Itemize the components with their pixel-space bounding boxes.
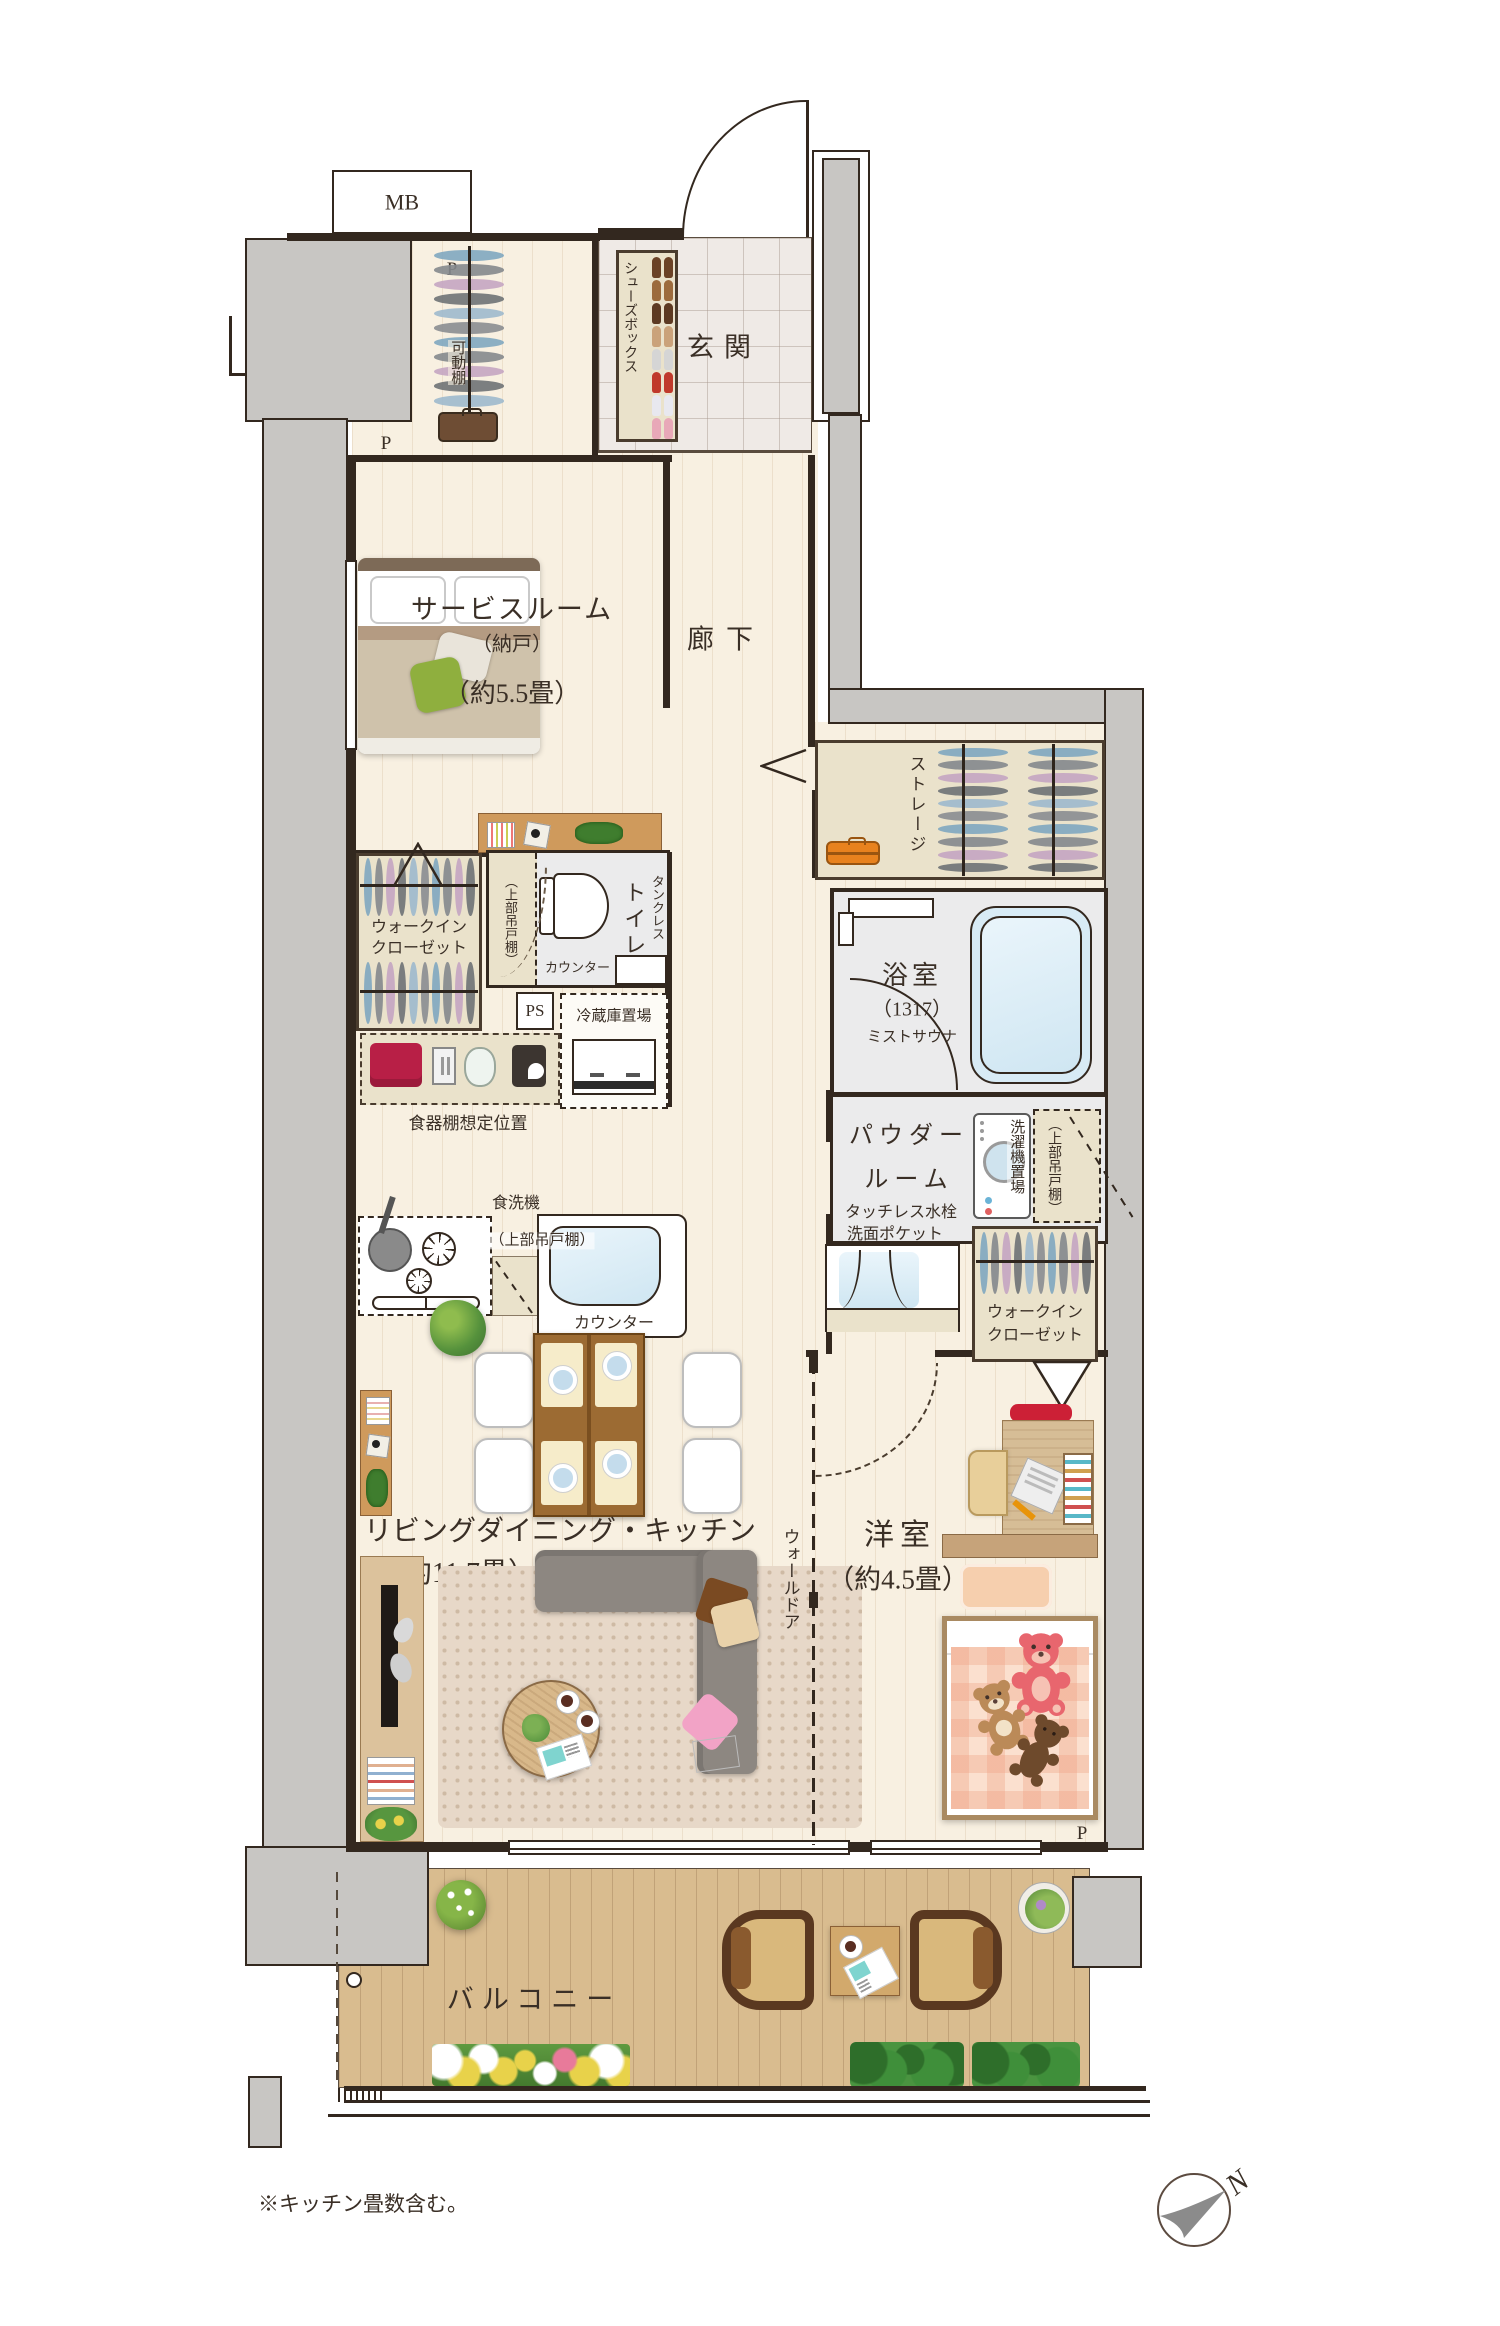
child-bed-headboard	[942, 1534, 1098, 1558]
hanging-garment	[938, 799, 1008, 809]
hanging-garment	[421, 962, 429, 1024]
shoe-icon	[652, 257, 661, 278]
dishwasher-label: 食洗機	[492, 1195, 540, 1213]
wall	[808, 455, 815, 747]
hanging-garment	[455, 858, 463, 916]
mb-label: MB	[385, 189, 419, 214]
shoe-icon	[664, 326, 673, 347]
hanging-garment	[409, 962, 417, 1024]
drain-cap	[346, 1972, 362, 1988]
hanging-garment	[938, 773, 1008, 783]
clothes-rail	[468, 246, 471, 412]
hanging-garment	[1071, 1232, 1079, 1294]
bush-planter	[850, 2042, 964, 2088]
dining-chair	[474, 1438, 534, 1514]
hanging-garment	[375, 858, 383, 916]
coffee-maker	[512, 1045, 546, 1087]
movable-shelf-label: 可動棚	[448, 340, 465, 385]
dining-chair	[682, 1352, 742, 1428]
bathtub	[970, 906, 1092, 1084]
coffee-table	[502, 1680, 600, 1778]
kitchen-stove-unit	[358, 1216, 492, 1316]
hanging-garment	[991, 1232, 999, 1294]
toilet-door-swing	[499, 865, 547, 977]
wall	[1040, 1842, 1108, 1852]
rattan-chair	[910, 1910, 1002, 2010]
hanging-garment	[386, 962, 394, 1024]
shoe-icon	[664, 349, 673, 370]
flower-planter	[432, 2044, 630, 2086]
wic2-clothes-rack	[978, 1232, 1092, 1294]
hanging-garment	[938, 748, 1008, 758]
kitchen-cabinet-corner	[492, 1256, 538, 1316]
service-room-size-label: （約5.5畳）	[444, 679, 581, 709]
hanging-garment	[938, 837, 1008, 847]
storage-door-marker	[760, 748, 808, 784]
hanging-garment	[1028, 786, 1098, 796]
toilet-counter-label: カウンター	[545, 961, 610, 976]
shoe-icon	[652, 372, 661, 393]
toilet-counter	[615, 955, 667, 985]
desk-chair	[968, 1450, 1008, 1516]
wall-door-label: ウォールドア	[780, 1528, 800, 1630]
shoe-icon	[664, 395, 673, 416]
coffee-cup	[576, 1710, 600, 1734]
potted-plant	[1018, 1882, 1070, 1934]
hanging-garment	[364, 858, 372, 916]
hanging-garment	[938, 786, 1008, 796]
hanging-garment	[398, 962, 406, 1024]
dining-chair	[474, 1352, 534, 1428]
hanging-garment	[364, 962, 372, 1024]
shoe-pair	[647, 418, 677, 439]
plan-note: ※キッチン畳数含む。	[258, 2192, 468, 2216]
kitchen-counter-label: カウンター	[574, 1315, 654, 1333]
hanging-garment	[938, 760, 1008, 770]
wic2-label-line1: ウォークイン	[987, 1304, 1083, 1322]
tv-board	[360, 1556, 424, 1842]
powder-label-line1: パウダー	[849, 1123, 969, 1151]
cupboard-note-label: 食器棚想定位置	[409, 1114, 528, 1134]
wall	[806, 1350, 818, 1357]
floor-plan: MB 玄関 シューズボックス P 可動棚 P	[0, 0, 1500, 2326]
shoes-box: シューズボックス	[616, 250, 678, 442]
study-desk	[1002, 1420, 1094, 1540]
hanging-garment	[1002, 1232, 1010, 1294]
ldk-label: リビングダイニング・キッチン	[364, 1516, 756, 1548]
hanging-garment	[1028, 799, 1098, 809]
bath-door-swing	[850, 978, 958, 1090]
wall	[598, 228, 684, 240]
play-cushion	[692, 1735, 740, 1773]
hanging-garment	[443, 962, 451, 1024]
hanging-garment	[938, 863, 1008, 873]
dining-chair	[682, 1438, 742, 1514]
meter-box: MB	[332, 170, 472, 234]
sideboard	[360, 1390, 392, 1516]
railing-hatch	[338, 2088, 384, 2102]
wall	[592, 237, 598, 455]
hanging-garment	[938, 850, 1008, 860]
service-room-sub-label: （納戸）	[472, 634, 552, 657]
hanging-garment	[980, 1232, 988, 1294]
hanging-garment	[1028, 760, 1098, 770]
entrance-door-swing	[682, 100, 806, 237]
fridge-space: 冷蔵庫置場	[560, 993, 668, 1109]
exterior-wall-top-left	[245, 238, 412, 422]
refrigerator	[572, 1039, 656, 1095]
hanging-garment	[1059, 1232, 1067, 1294]
shoe-pair	[647, 395, 677, 416]
wall	[352, 455, 672, 462]
rice-cooker	[464, 1047, 496, 1087]
shoe-pair	[647, 372, 677, 393]
flower-plant	[365, 1807, 417, 1841]
hanging-garment	[938, 824, 1008, 834]
property-line	[229, 316, 232, 376]
shoe-icon	[664, 418, 673, 439]
ps-label: PS	[526, 1001, 545, 1021]
burner	[406, 1268, 432, 1294]
topiary-plant	[436, 1880, 486, 1930]
hanging-garment	[1028, 748, 1098, 758]
shoe-icon	[652, 349, 661, 370]
powder-label-line2: ルーム	[864, 1167, 953, 1195]
fridge-space-label: 冷蔵庫置場	[576, 1008, 651, 1025]
child-bed-pillow	[960, 1564, 1052, 1610]
plant-pot	[430, 1300, 486, 1356]
railing-end-post	[248, 2076, 282, 2148]
bath-mirror	[838, 912, 854, 946]
shoe-pair	[647, 280, 677, 301]
exterior-wall-balcony-right	[1072, 1876, 1142, 1968]
service-room-label: サービスルーム	[411, 594, 613, 625]
cupboard-shelf	[360, 1033, 560, 1105]
wall	[346, 1842, 510, 1852]
hanging-garment	[443, 858, 451, 916]
laundry-space-label: 洗濯機置場	[1007, 1119, 1024, 1194]
wic1-door-marker	[392, 842, 444, 888]
coffee-cup	[556, 1690, 580, 1714]
shoe-icon	[652, 280, 661, 301]
western-room-label: 洋室	[864, 1519, 936, 1554]
small-plant	[522, 1714, 550, 1742]
powder-feature1-label: タッチレス水栓	[845, 1204, 957, 1222]
balcony-railing	[344, 2086, 1146, 2091]
laundry-upper-shelf-zone	[1033, 1109, 1101, 1223]
tankless-label: タンクレス	[649, 875, 664, 940]
wall-door-post	[809, 1592, 818, 1608]
toaster	[432, 1047, 456, 1085]
clothes-rail	[360, 990, 478, 993]
hanging-garment	[1014, 1232, 1022, 1294]
balcony-table	[830, 1926, 900, 1996]
hanging-garment	[432, 962, 440, 1024]
wic1-label-line1: ウォークイン	[371, 919, 467, 937]
hanging-garment	[1025, 1232, 1033, 1294]
shoe-icon	[664, 372, 673, 393]
shoe-pair	[647, 303, 677, 324]
clothes-rail	[962, 744, 965, 876]
suitcase	[826, 841, 880, 865]
hanging-garment	[1037, 1232, 1045, 1294]
toilet-label: トイレ	[621, 881, 646, 959]
bush-planter	[972, 2042, 1080, 2088]
hanging-garment	[938, 811, 1008, 821]
storage-label: ストレージ	[906, 755, 926, 855]
exterior-wall-right	[1104, 688, 1144, 1850]
dining-table	[533, 1333, 645, 1517]
pipe-space-label: P	[1077, 1823, 1088, 1845]
wic1-label-line2: クローゼット	[371, 940, 467, 958]
clothes-rail	[976, 1260, 1094, 1263]
hanging-garment	[1082, 1232, 1090, 1294]
property-line	[229, 373, 245, 376]
exterior-wall-storage-top	[828, 688, 1114, 724]
shoe-icon	[664, 303, 673, 324]
hanging-garment	[1028, 863, 1098, 873]
powder-room: パウダー ルーム タッチレス水栓 洗面ポケット 洗濯機置場 （上部吊戸棚）	[830, 1094, 1108, 1244]
shoe-pair	[647, 257, 677, 278]
pipe-shaft: PS	[516, 992, 554, 1030]
bath-shelf	[848, 898, 934, 918]
shoe-icon	[664, 257, 673, 278]
hanging-garment	[1028, 837, 1098, 847]
book-stack	[367, 1757, 415, 1805]
microwave	[370, 1043, 422, 1087]
balcony-window	[870, 1840, 1042, 1855]
vanity	[825, 1244, 960, 1332]
entrance-label: 玄関	[687, 332, 761, 363]
balcony-partition-line	[336, 1872, 338, 2086]
corridor-label: 廊下	[687, 624, 765, 655]
shoe-icon	[652, 326, 661, 347]
wic1-clothes-rack	[362, 962, 476, 1024]
service-room-desk	[478, 813, 662, 853]
window	[345, 560, 357, 750]
rattan-chair	[722, 1910, 814, 2010]
hanging-garment	[455, 962, 463, 1024]
shoe-icon	[652, 418, 661, 439]
laundry-upper-shelf-label: （上部吊戸棚）	[1045, 1117, 1061, 1215]
balcony-label: バルコニー	[447, 1984, 621, 2015]
shoe-icon	[652, 395, 661, 416]
entrance-side-wall-fill	[822, 158, 860, 414]
entrance-door-leaf	[806, 100, 809, 237]
wic2-label-line2: クローゼット	[987, 1327, 1083, 1345]
shoe-pair	[647, 349, 677, 370]
burner	[422, 1232, 456, 1266]
balcony-railing	[344, 2100, 1150, 2103]
toilet-room: （上部吊戸棚） タンクレス トイレ カウンター	[486, 850, 670, 988]
wic2-door-marker	[1032, 1360, 1092, 1410]
wall	[848, 1842, 872, 1852]
suitcase	[438, 412, 498, 442]
kitchen-upper-shelf-label: （上部吊戸棚）	[489, 1232, 594, 1249]
storage-clothes-rack	[938, 746, 1008, 874]
wall	[287, 233, 600, 241]
bathroom: 浴室 （1317） ミストサウナ	[830, 888, 1108, 1096]
balcony-window	[508, 1840, 850, 1855]
powder-feature2-label: 洗面ポケット	[847, 1226, 943, 1244]
hanging-garment	[1028, 811, 1098, 821]
wall	[663, 458, 670, 708]
western-room-size-label: （約4.5畳）	[827, 1564, 969, 1595]
hanging-garment	[1048, 1232, 1056, 1294]
clothes-rail	[1052, 744, 1055, 876]
hanging-garment	[466, 858, 474, 916]
entrance-step	[598, 450, 812, 453]
shoes-box-label: シューズボックス	[621, 261, 637, 437]
hanging-garment	[1028, 824, 1098, 834]
shoe-icon	[652, 303, 661, 324]
toilet-bowl	[553, 873, 609, 939]
shoes	[647, 255, 677, 441]
pipe-space-label: P	[381, 433, 392, 455]
frying-pan	[368, 1228, 412, 1272]
desk-bookshelf	[1063, 1453, 1093, 1525]
exterior-wall-left	[262, 418, 348, 1850]
coffee-cup	[839, 1935, 863, 1959]
storage-clothes-rack	[1028, 746, 1098, 874]
balcony-railing	[328, 2114, 1150, 2117]
hanging-garment	[1028, 850, 1098, 860]
shoe-icon	[664, 280, 673, 301]
exterior-wall-mid-right	[828, 414, 862, 696]
shoe-pair	[647, 326, 677, 347]
hanging-garment	[466, 962, 474, 1024]
hanging-garment	[1028, 773, 1098, 783]
hanging-garment	[375, 962, 383, 1024]
